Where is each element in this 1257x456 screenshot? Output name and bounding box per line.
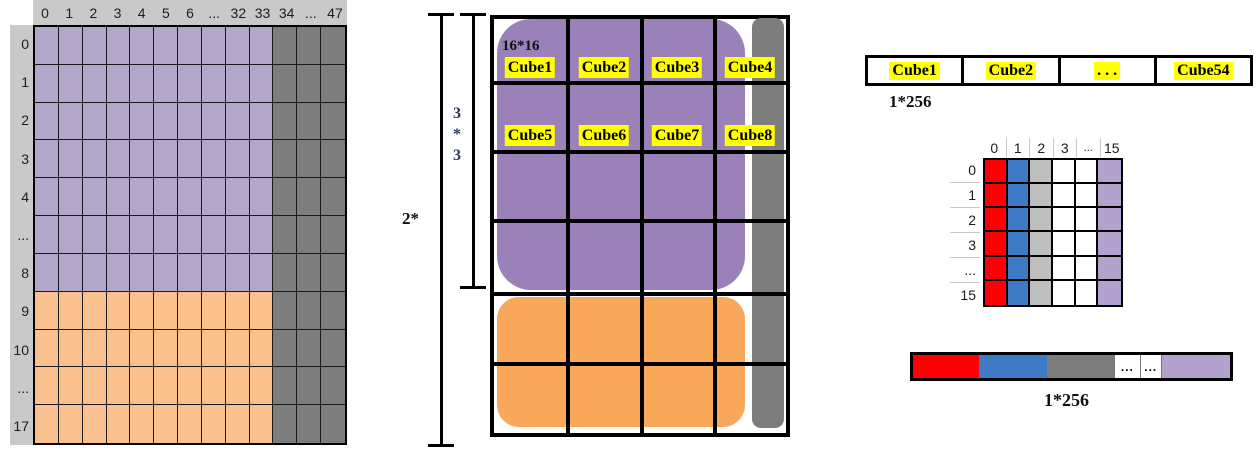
memory-bar-segment xyxy=(1161,355,1230,378)
outer-bracket-top-cap xyxy=(428,13,454,16)
small-grid-cell xyxy=(1098,281,1121,305)
small-grid-cell xyxy=(1008,208,1031,232)
left-grid-cell xyxy=(59,27,83,65)
left-grid-cell xyxy=(154,178,178,216)
left-grid-cell xyxy=(178,65,202,103)
cube-strip-cell-label: Cube1 xyxy=(889,62,939,80)
middle-grid-hline-5 xyxy=(490,362,790,366)
left-grid-col-header: 34 xyxy=(275,5,299,21)
small-grid xyxy=(983,158,1123,307)
left-grid-row-header: 3 xyxy=(10,140,33,178)
left-grid-cell xyxy=(297,178,321,216)
middle-grid-hline-4 xyxy=(490,292,790,296)
left-grid-cell xyxy=(273,103,297,141)
cube-label: Cube5 xyxy=(505,125,555,146)
left-grid-cell xyxy=(321,65,345,103)
outer-bracket-line xyxy=(440,13,443,447)
left-grid-cell xyxy=(83,140,107,178)
left-grid-cell xyxy=(83,216,107,254)
small-grid-row-header: 2 xyxy=(950,207,980,232)
outer-bracket-label: 2* xyxy=(402,209,419,229)
left-grid-cell xyxy=(321,367,345,405)
left-grid-col-header: 2 xyxy=(81,5,105,21)
left-grid-cell xyxy=(273,216,297,254)
left-grid-cell xyxy=(273,27,297,65)
memory-bar-segment xyxy=(979,355,1047,378)
memory-bar-caption: 1*256 xyxy=(1044,390,1089,411)
left-grid-cell xyxy=(226,367,250,405)
left-grid-cell xyxy=(83,178,107,216)
small-grid-cell xyxy=(985,184,1008,208)
left-grid-col-header: 5 xyxy=(154,5,178,21)
left-grid-column-headers: 0123456...323334...47 xyxy=(33,0,347,25)
memory-bar-segment: ... xyxy=(1114,355,1139,378)
small-grid-cell xyxy=(1053,257,1076,281)
left-grid-cell xyxy=(107,27,131,65)
inner-bracket-label-line2: * xyxy=(446,124,468,145)
left-grid-cell xyxy=(273,292,297,330)
left-grid-cell xyxy=(250,140,274,178)
left-grid-cell xyxy=(130,330,154,368)
left-grid-cell xyxy=(273,178,297,216)
left-grid-cell xyxy=(226,140,250,178)
left-grid-cell xyxy=(297,140,321,178)
left-grid-cell xyxy=(59,330,83,368)
left-grid-cell xyxy=(250,405,274,443)
memory-bar-segment xyxy=(913,355,979,378)
left-grid-cell xyxy=(250,254,274,292)
left-grid-cell xyxy=(35,27,59,65)
left-grid-cell xyxy=(59,405,83,443)
small-grid-cell xyxy=(1053,160,1076,184)
left-grid-cell xyxy=(154,216,178,254)
left-grid-cell xyxy=(226,216,250,254)
left-grid-cell xyxy=(59,292,83,330)
left-grid-col-header: 32 xyxy=(226,5,250,21)
left-grid-cell xyxy=(107,140,131,178)
left-grid-cell xyxy=(321,330,345,368)
left-grid-cell xyxy=(273,367,297,405)
left-grid-cell xyxy=(226,292,250,330)
left-grid-cell xyxy=(154,405,178,443)
small-grid-cell xyxy=(1008,232,1031,256)
left-grid-cell xyxy=(83,292,107,330)
left-grid-cell xyxy=(130,292,154,330)
left-grid-cell xyxy=(297,254,321,292)
left-grid-cell xyxy=(250,178,274,216)
small-grid-col-header: 15 xyxy=(1100,138,1124,158)
small-grid-cell xyxy=(1076,257,1099,281)
left-grid-cell xyxy=(273,140,297,178)
left-grid xyxy=(33,25,347,445)
left-grid-cell xyxy=(59,254,83,292)
left-grid-cell xyxy=(321,103,345,141)
left-grid-cell xyxy=(107,178,131,216)
cube-strip-cell-label: Cube54 xyxy=(1174,62,1232,80)
small-grid-cell xyxy=(985,257,1008,281)
left-grid-cell xyxy=(250,292,274,330)
left-grid-cell xyxy=(202,292,226,330)
left-grid-cell xyxy=(178,330,202,368)
left-grid-cell xyxy=(226,103,250,141)
left-grid-col-header: 47 xyxy=(323,5,347,21)
left-grid-cell xyxy=(297,292,321,330)
cube-strip-cell: . . . xyxy=(1058,58,1154,83)
left-grid-cell xyxy=(130,216,154,254)
left-grid-col-header: 33 xyxy=(250,5,274,21)
left-grid-cell xyxy=(321,254,345,292)
small-grid-row-header: 0 xyxy=(950,158,980,182)
left-grid-cell xyxy=(321,405,345,443)
left-grid-cell xyxy=(35,140,59,178)
small-grid-cell xyxy=(1098,160,1121,184)
left-grid-cell xyxy=(154,254,178,292)
small-grid-row-header: 1 xyxy=(950,182,980,207)
left-grid-cell xyxy=(178,27,202,65)
left-grid-cell xyxy=(154,367,178,405)
left-grid-cell xyxy=(59,216,83,254)
middle-grid-hline-1 xyxy=(490,81,790,85)
left-grid-cell xyxy=(202,330,226,368)
left-grid-cell xyxy=(202,367,226,405)
small-grid-cell xyxy=(1076,160,1099,184)
left-grid-cell xyxy=(35,254,59,292)
cube-label: Cube3 xyxy=(652,57,702,78)
inner-bracket-line xyxy=(472,13,475,289)
left-grid-cell xyxy=(35,367,59,405)
left-grid-cell xyxy=(130,178,154,216)
left-grid-cell xyxy=(83,65,107,103)
small-grid-row-header: 15 xyxy=(950,282,980,307)
small-grid-column-headers: 0123...15 xyxy=(983,136,1123,158)
left-grid-row-headers: 01234...8910...17 xyxy=(10,25,33,445)
left-grid-cell xyxy=(107,405,131,443)
cube-memory-layout-diagram: { "colors": { "left_purple": "#b2a6c9", … xyxy=(0,0,1257,456)
left-grid-cell xyxy=(107,216,131,254)
left-grid-cell xyxy=(83,27,107,65)
left-grid-cell xyxy=(130,140,154,178)
left-grid-cell xyxy=(130,103,154,141)
left-grid-cell xyxy=(250,367,274,405)
small-grid-cell xyxy=(1030,232,1053,256)
left-grid-cell xyxy=(321,140,345,178)
left-grid-cell xyxy=(178,405,202,443)
left-grid-cell xyxy=(35,292,59,330)
left-grid-cell xyxy=(178,292,202,330)
small-grid-cell xyxy=(1053,281,1076,305)
left-grid-cell xyxy=(202,27,226,65)
left-grid-cell xyxy=(83,405,107,443)
small-grid-cell xyxy=(1053,208,1076,232)
inner-bracket-label: 3 * 3 xyxy=(446,103,468,166)
left-grid-row-header: ... xyxy=(10,369,33,407)
left-grid-row-header: 0 xyxy=(10,25,33,63)
cube-strip-cell-label: . . . xyxy=(1094,62,1120,80)
small-grid-cell xyxy=(1008,257,1031,281)
small-grid-col-header: 2 xyxy=(1029,138,1053,158)
left-grid-cell xyxy=(154,103,178,141)
left-grid-cell xyxy=(226,254,250,292)
left-grid-cell xyxy=(83,330,107,368)
small-grid-cell xyxy=(1098,184,1121,208)
left-grid-col-header: 6 xyxy=(178,5,202,21)
small-grid-cell xyxy=(1076,232,1099,256)
left-grid-cell xyxy=(154,65,178,103)
left-grid-cell xyxy=(178,140,202,178)
left-grid-cell xyxy=(154,140,178,178)
small-grid-col-header: 3 xyxy=(1053,138,1077,158)
small-grid-row-headers: 0123...15 xyxy=(950,158,980,307)
cube-label: Cube2 xyxy=(579,57,629,78)
left-grid-cell xyxy=(297,65,321,103)
memory-bar-segment: ... xyxy=(1140,355,1161,378)
small-grid-cell xyxy=(1076,208,1099,232)
small-grid-cell xyxy=(1098,232,1121,256)
left-grid-cell xyxy=(273,254,297,292)
left-grid-cell xyxy=(35,330,59,368)
left-grid-cell xyxy=(107,103,131,141)
small-grid-cell xyxy=(1076,281,1099,305)
left-grid-cell xyxy=(226,405,250,443)
middle-grid-vline-3 xyxy=(713,15,717,437)
cube-strip-cell: Cube1 xyxy=(868,58,961,83)
small-grid-cell xyxy=(985,232,1008,256)
left-grid-cell xyxy=(35,103,59,141)
cube-strip-cell-label: Cube2 xyxy=(986,62,1036,80)
left-grid-cell xyxy=(35,178,59,216)
left-grid-cell xyxy=(59,65,83,103)
left-grid-cell xyxy=(83,367,107,405)
left-grid-cell xyxy=(321,292,345,330)
left-grid-cell xyxy=(250,27,274,65)
small-grid-cell xyxy=(1030,257,1053,281)
left-grid-cell xyxy=(107,65,131,103)
left-grid-row-header: ... xyxy=(10,216,33,254)
inner-bracket-label-line1: 3 xyxy=(446,103,468,124)
left-grid-cell xyxy=(202,140,226,178)
left-grid-col-header: ... xyxy=(299,5,323,21)
left-grid-cell xyxy=(59,140,83,178)
cube-strip-cell: Cube54 xyxy=(1154,58,1250,83)
small-grid-cell xyxy=(1008,184,1031,208)
left-grid-cell xyxy=(130,65,154,103)
left-grid-cell xyxy=(226,178,250,216)
small-grid-cell xyxy=(1008,281,1031,305)
left-grid-cell xyxy=(273,405,297,443)
left-grid-cell xyxy=(202,254,226,292)
left-grid-cell xyxy=(130,405,154,443)
left-grid-row-header: 17 xyxy=(10,407,33,445)
left-grid-cell xyxy=(178,103,202,141)
left-grid-cell xyxy=(59,103,83,141)
left-grid-cell xyxy=(273,65,297,103)
left-grid-cell xyxy=(297,405,321,443)
memory-bar: ...... xyxy=(910,352,1233,381)
left-grid-cell xyxy=(297,216,321,254)
left-grid-cell xyxy=(83,103,107,141)
small-grid-cell xyxy=(985,208,1008,232)
inner-bracket-bottom-cap xyxy=(460,286,486,289)
small-grid-cell xyxy=(1076,184,1099,208)
left-grid-cell xyxy=(250,103,274,141)
outer-bracket-bottom-cap xyxy=(428,444,454,447)
left-grid-cell xyxy=(107,254,131,292)
left-grid-cell xyxy=(83,254,107,292)
tile-size-label: 16*16 xyxy=(502,38,540,55)
left-grid-cell xyxy=(250,65,274,103)
left-grid-cell xyxy=(202,178,226,216)
left-grid-cell xyxy=(130,254,154,292)
cube-label: Cube6 xyxy=(579,125,629,146)
middle-grid-hline-3 xyxy=(490,219,790,223)
left-grid-cell xyxy=(178,367,202,405)
small-grid-cell xyxy=(985,160,1008,184)
middle-grid-hline-2 xyxy=(490,150,790,154)
small-grid-cell xyxy=(1030,208,1053,232)
left-grid-cell xyxy=(250,216,274,254)
small-grid-row-header: 3 xyxy=(950,232,980,257)
middle-grid-vline-1 xyxy=(566,15,570,437)
left-grid-col-header: 0 xyxy=(33,5,57,21)
inner-bracket-label-line3: 3 xyxy=(446,145,468,166)
cube-label: Cube1 xyxy=(505,57,555,78)
left-grid-cell xyxy=(297,27,321,65)
small-grid-cell xyxy=(1098,257,1121,281)
left-grid-cell xyxy=(226,330,250,368)
small-grid-col-header: ... xyxy=(1076,138,1100,158)
cube-label: Cube7 xyxy=(652,125,702,146)
left-grid-cell xyxy=(107,292,131,330)
middle-grid-vline-2 xyxy=(640,15,644,437)
left-grid-row-header: 9 xyxy=(10,292,33,330)
cube-strip: Cube1Cube2. . .Cube54 xyxy=(865,55,1253,86)
left-grid-cell xyxy=(297,330,321,368)
left-grid-cell xyxy=(178,216,202,254)
left-grid-cell xyxy=(35,405,59,443)
left-grid-col-header: 4 xyxy=(130,5,154,21)
left-grid-cell xyxy=(130,367,154,405)
cube-label: Cube8 xyxy=(725,125,775,146)
left-grid-cell xyxy=(107,330,131,368)
left-grid-cell xyxy=(321,216,345,254)
left-grid-cell xyxy=(321,27,345,65)
left-grid-cell xyxy=(178,254,202,292)
small-grid-cell xyxy=(1053,184,1076,208)
small-grid-cell xyxy=(1053,232,1076,256)
left-grid-row-header: 4 xyxy=(10,178,33,216)
left-grid-row-header: 8 xyxy=(10,254,33,292)
left-grid-col-header: 3 xyxy=(105,5,129,21)
memory-bar-segment xyxy=(1047,355,1114,378)
small-grid-cell xyxy=(1030,281,1053,305)
left-grid-cell xyxy=(226,27,250,65)
left-grid-cell xyxy=(107,367,131,405)
gray-side-bar xyxy=(752,18,784,428)
left-grid-cell xyxy=(178,178,202,216)
left-grid-cell xyxy=(35,216,59,254)
left-grid-cell xyxy=(35,65,59,103)
left-grid-cell xyxy=(250,330,274,368)
left-grid-row-header: 10 xyxy=(10,331,33,369)
small-grid-cell xyxy=(1030,184,1053,208)
small-grid-col-header: 1 xyxy=(1006,138,1030,158)
left-grid-cell xyxy=(297,103,321,141)
left-grid-row-header: 2 xyxy=(10,101,33,139)
left-grid-cell xyxy=(226,65,250,103)
left-grid-cell xyxy=(273,330,297,368)
small-grid-row-header: ... xyxy=(950,257,980,282)
small-grid-cell xyxy=(1030,160,1053,184)
left-grid-row-header: 1 xyxy=(10,63,33,101)
left-grid-cell xyxy=(202,405,226,443)
left-grid-cell xyxy=(59,178,83,216)
cube-strip-cell: Cube2 xyxy=(961,58,1057,83)
inner-bracket-top-cap xyxy=(460,13,486,16)
left-grid-cell xyxy=(202,65,226,103)
left-grid-col-header: 1 xyxy=(57,5,81,21)
left-grid-col-header: ... xyxy=(202,5,226,21)
left-grid-cell xyxy=(130,27,154,65)
left-grid-cell xyxy=(321,178,345,216)
cube-strip-caption: 1*256 xyxy=(889,92,932,112)
small-grid-cell xyxy=(1098,208,1121,232)
left-grid-cell xyxy=(202,216,226,254)
small-grid-cell xyxy=(985,281,1008,305)
left-grid-cell xyxy=(297,367,321,405)
cube-label: Cube4 xyxy=(725,57,775,78)
left-grid-cell xyxy=(59,367,83,405)
small-grid-col-header: 0 xyxy=(983,138,1006,158)
left-grid-cell xyxy=(202,103,226,141)
small-grid-cell xyxy=(1008,160,1031,184)
left-grid-cell xyxy=(154,330,178,368)
left-grid-cell xyxy=(154,292,178,330)
left-grid-cell xyxy=(154,27,178,65)
